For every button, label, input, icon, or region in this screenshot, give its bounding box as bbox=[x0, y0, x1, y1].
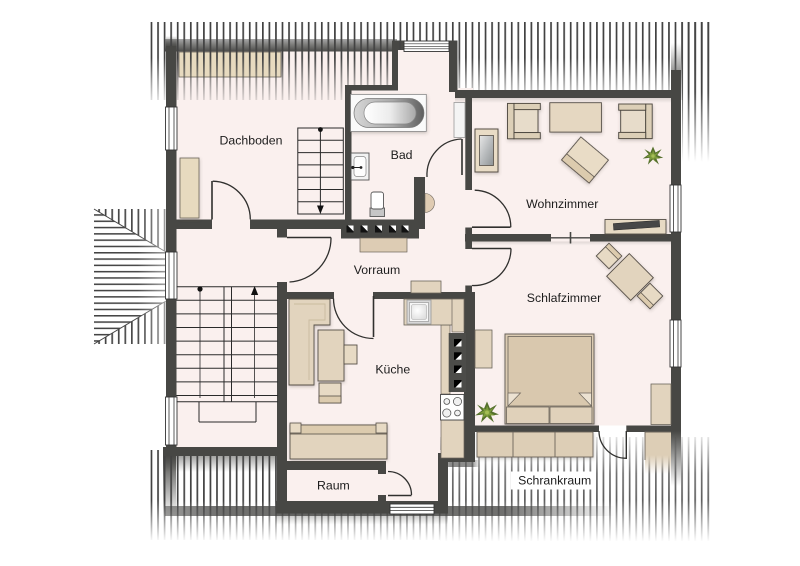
svg-text:Schrankraum: Schrankraum bbox=[518, 474, 591, 488]
svg-text:Vorraum: Vorraum bbox=[354, 263, 400, 277]
svg-text:Raum: Raum bbox=[317, 478, 350, 492]
svg-text:Dachboden: Dachboden bbox=[220, 134, 283, 148]
svg-text:Bad: Bad bbox=[391, 148, 413, 162]
svg-text:Küche: Küche bbox=[375, 362, 410, 376]
svg-text:Schlafzimmer: Schlafzimmer bbox=[527, 291, 601, 305]
svg-text:Wohnzimmer: Wohnzimmer bbox=[526, 197, 598, 211]
